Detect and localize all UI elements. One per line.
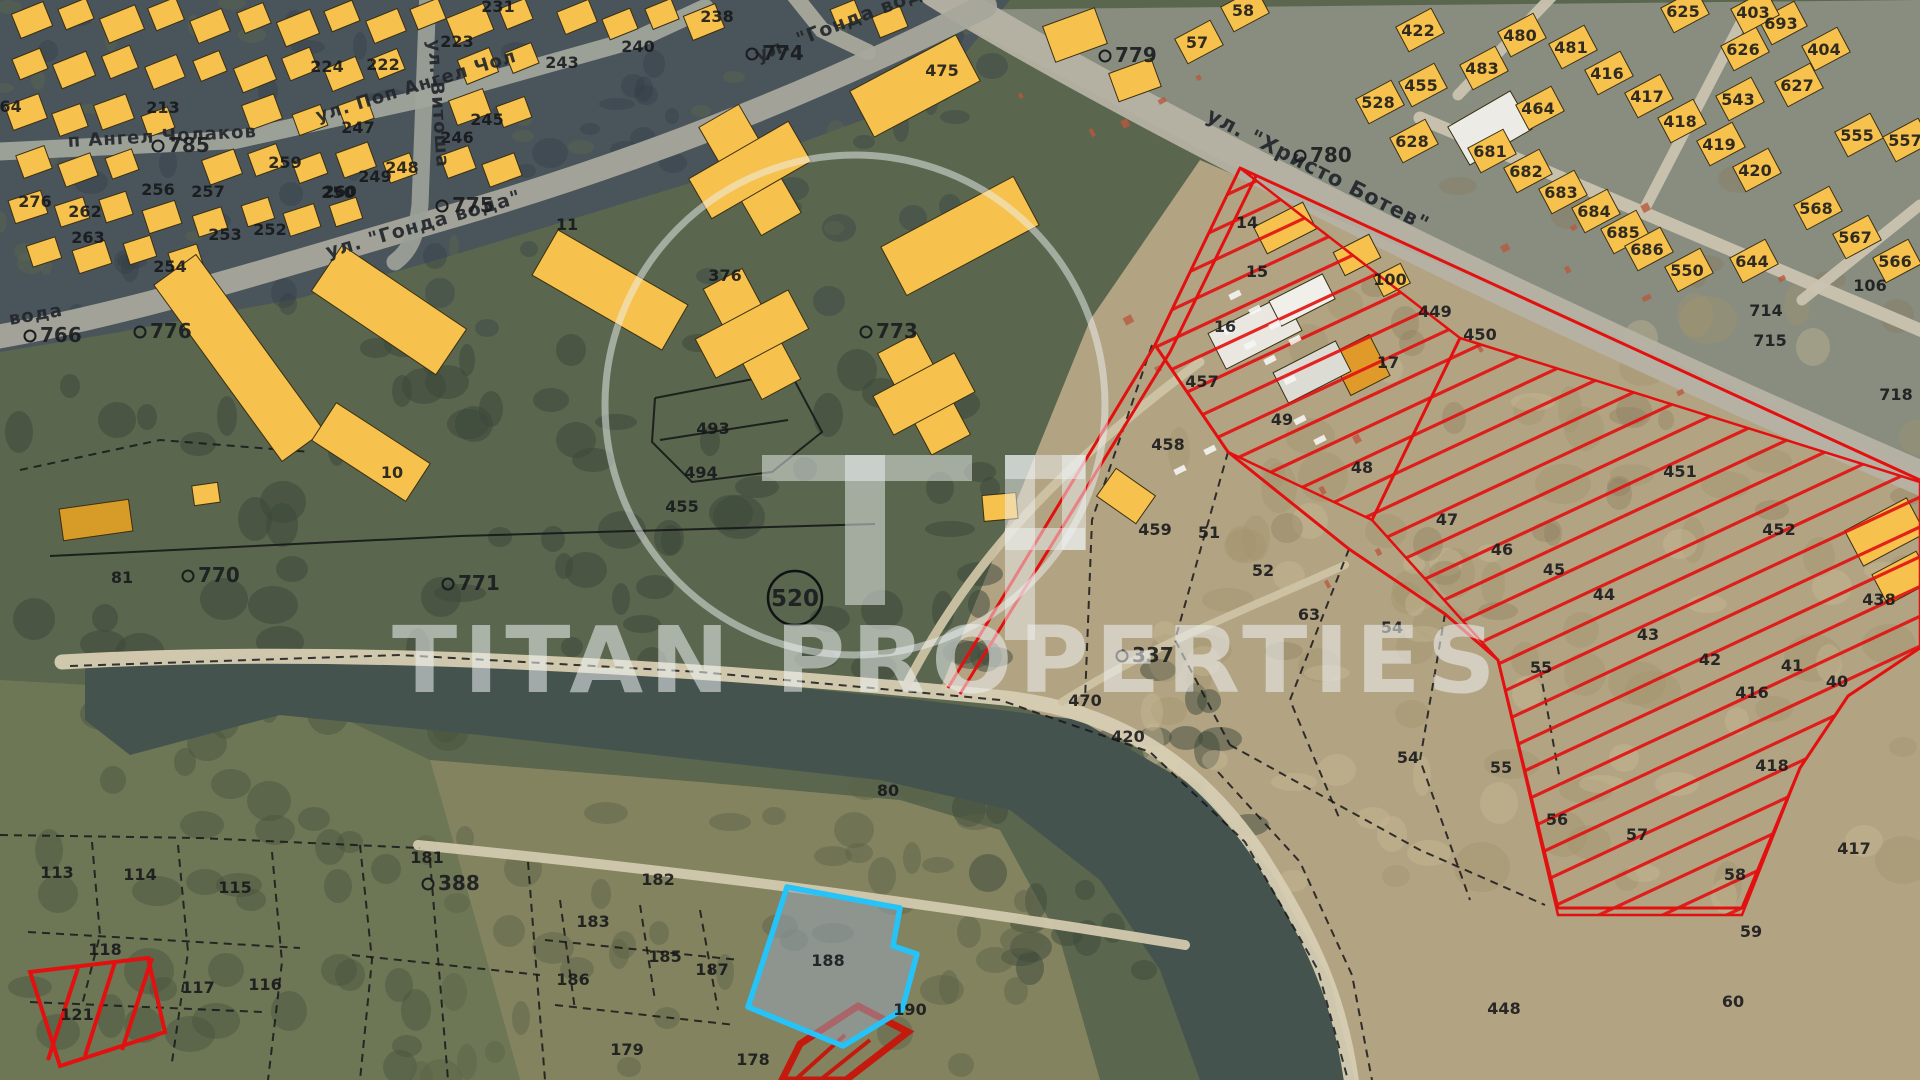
parcel-label: 438 [1862,590,1895,609]
parcel-label: 117 [181,978,214,997]
parcel-label: 52 [1252,561,1274,580]
tree-patch [762,807,786,825]
tree-patch [837,349,877,391]
tree-patch [100,766,126,794]
aerial-map-svg: 2132222232242312382402432452462472482492… [0,0,1920,1080]
parcel-label: 264 [0,97,22,116]
tree-patch [279,293,297,315]
parcel-label: 449 [1418,302,1451,321]
parcel-label: 568 [1799,199,1832,218]
tree-patch [957,814,993,830]
parcel-label: 376 [708,266,741,285]
parcel-label: 48 [1351,458,1373,477]
survey-point-number: 388 [438,871,480,895]
tree-patch [276,556,308,582]
parcel-label: 417 [1630,87,1663,106]
tree-patch [266,503,298,547]
parcel-label: 483 [1465,59,1498,78]
parcel-label: 276 [18,192,51,211]
parcel-label: 455 [665,497,698,516]
tree-patch [137,404,157,430]
parcel-label: 243 [545,53,578,72]
tree-patch [556,334,586,366]
parcel-label: 80 [877,781,899,800]
parcel-label: 420 [1111,727,1144,746]
survey-point-number: 770 [198,563,240,587]
tree-patch [649,921,669,945]
tree-patch [813,286,845,316]
tree-patch [1579,775,1625,793]
parcel-label: 715 [1753,331,1786,350]
parcel-label: 178 [736,1050,769,1069]
tree-patch [324,869,352,903]
tree-patch [595,414,637,430]
tree-patch [1169,726,1203,750]
tree-patch [255,815,295,845]
survey-point-number: 776 [150,319,192,343]
tree-patch [1014,890,1034,912]
parcel-label: 121 [60,1005,93,1024]
tree-patch [584,802,628,824]
parcel-label: 45 [1543,560,1565,579]
parcel-label: 57 [1626,825,1648,844]
tree-patch [853,135,875,149]
parcel-label: 543 [1721,90,1754,109]
tree-patch [279,182,303,206]
parcel-label: 481 [1554,38,1587,57]
parcel-label: 420 [1738,161,1771,180]
tree-patch [475,319,499,337]
parcel-label: 47 [1436,510,1458,529]
tree-patch [425,278,455,308]
parcel-label: 566 [1878,252,1911,271]
tree-patch [217,396,237,436]
tree-patch [925,521,975,537]
parcel-label: 182 [641,870,674,889]
tree-patch [5,411,33,453]
parcel-label: 464 [1521,99,1554,118]
parcel-label: 457 [1185,372,1218,391]
survey-point-number: 785 [168,133,210,157]
parcel-label: 252 [253,220,286,239]
tree-patch [533,388,569,412]
survey-point-number: 766 [40,323,82,347]
parcel-label: 416 [1735,683,1768,702]
parcel-label: 686 [1630,240,1663,259]
parcel-label: 253 [208,225,241,244]
tree-patch [834,812,874,848]
parcel-label: 557 [1888,131,1920,150]
tree-patch [827,120,845,142]
tree-patch [636,575,674,599]
parcel-label: 555 [1840,126,1873,145]
tree-patch [441,973,467,1011]
tree-patch [568,140,594,154]
tree-patch [457,1044,477,1080]
tree-patch [813,393,843,437]
parcel-label: 60 [1722,992,1744,1011]
parcel-label: 100 [1373,270,1406,289]
tree-patch [13,598,55,640]
parcel-label: 16 [1214,317,1236,336]
tree-patch [1796,328,1830,366]
parcel-label: 259 [268,153,301,172]
parcel-label: 550 [1670,261,1703,280]
parcel-label: 718 [1879,385,1912,404]
tree-patch [940,110,970,124]
tree-patch [1658,410,1674,430]
tree-patch [298,807,330,831]
parcel-label: 493 [696,419,729,438]
parcel-label: 58 [1232,1,1254,20]
tree-patch [532,138,568,168]
parcel-label: 418 [1663,112,1696,131]
tree-patch [1271,513,1303,543]
watermark-text: TITAN PROPERTIES [392,607,1502,714]
parcel-label: 187 [695,960,728,979]
survey-point-number: 775 [452,193,494,217]
parcel-label: 183 [576,912,609,931]
parcel-label: 254 [153,257,186,276]
tree-patch [488,527,512,547]
parcel-label: 51 [1198,523,1220,542]
parcel-label: 416 [1590,64,1623,83]
parcel-label: 714 [1749,301,1782,320]
parcel-label: 190 [893,1000,926,1019]
parcel-label: 10 [381,463,403,482]
parcel-label: 627 [1780,76,1813,95]
tree-patch [1224,529,1266,563]
tree-patch [1889,737,1917,757]
parcel-label: 55 [1530,658,1552,677]
survey-point-number: 774 [762,41,804,65]
tree-patch [1532,522,1560,542]
parcel-label: 185 [648,947,681,966]
tree-patch [617,1057,641,1077]
tree-patch [1755,500,1789,520]
tree-patch [371,854,401,884]
parcel-label: 681 [1473,142,1506,161]
tree-patch [555,553,573,579]
tree-patch [969,854,1007,892]
parcel-label: 451 [1663,462,1696,481]
parcel-label: 403 [1736,3,1769,22]
tree-patch [8,976,52,998]
tree-patch [248,586,298,624]
tree-patch [1439,177,1477,195]
parcel-label: 418 [1755,756,1788,775]
parcel-label: 683 [1544,183,1577,202]
tree-patch [976,53,1008,79]
tree-patch [92,604,118,632]
tree-patch [493,915,525,947]
watermark-monogram [845,455,885,605]
parcel-label: 452 [1762,520,1795,539]
tree-patch [1382,865,1410,887]
parcel-label: 17 [1377,353,1399,372]
tree-patch [444,893,470,913]
parcel-label: 116 [248,975,281,994]
tree-patch [868,857,896,895]
parcel-label: 106 [1853,276,1886,295]
tree-patch [1480,782,1518,824]
tree-patch [948,1053,974,1077]
tree-patch [247,781,291,821]
parcel-label: 450 [1463,325,1496,344]
tree-patch [402,368,446,404]
parcel-label: 186 [556,970,589,989]
parcel-label: 249 [358,167,391,186]
tree-patch [814,846,852,866]
parcel-label: 455 [1404,76,1437,95]
tree-patch [1075,880,1095,900]
parcel-label: 81 [111,568,133,587]
parcel-label: 257 [191,182,224,201]
tree-patch [512,130,534,142]
parcel-label: 213 [146,98,179,117]
parcel-label: 625 [1666,2,1699,21]
parcel-label: 44 [1593,585,1615,604]
tree-patch [957,916,981,948]
parcel-label: 644 [1735,252,1768,271]
tree-patch [321,954,357,986]
tree-patch [1131,960,1157,980]
tree-patch [1000,926,1044,954]
parcel-label: 54 [1397,748,1419,767]
tree-patch [211,769,251,799]
tree-patch [665,108,679,124]
parcel-label: 59 [1740,922,1762,941]
parcel-label: 224 [310,57,343,76]
tree-patch [353,32,367,60]
watermark-monogram [1005,528,1085,550]
parcel-label: 262 [68,202,101,221]
parcel-label: 458 [1151,435,1184,454]
parcel-label: 41 [1781,656,1803,675]
parcel-label: 14 [1236,213,1258,232]
tree-patch [541,526,565,552]
tree-patch [512,1001,530,1035]
tree-patch [580,123,600,135]
tree-patch [599,98,635,110]
tree-patch [609,939,629,969]
parcel-label: 56 [1546,810,1568,829]
parcel-label: 231 [481,0,514,16]
parcel-label: 684 [1577,202,1610,221]
map-canvas[interactable]: 2132222232242312382402432452462472482492… [0,0,1920,1080]
survey-point-number: 780 [1310,143,1352,167]
parcel-label: 179 [610,1040,643,1059]
parcel-label: 57 [1186,33,1208,52]
parcel-label: 247 [341,118,374,137]
tree-patch [423,243,447,269]
tree-patch [315,829,345,865]
tree-patch [806,246,820,262]
tree-patch [903,842,921,874]
parcel-label: 113 [40,863,73,882]
parcel-label: 11 [556,215,578,234]
parcel-label: 240 [621,37,654,56]
parcel-label: 15 [1246,262,1268,281]
tree-patch [1454,842,1510,892]
building-footprint [192,482,221,505]
parcel-label: 448 [1487,999,1520,1018]
tree-patch [691,105,711,117]
tree-patch [447,409,489,439]
survey-point-number: 773 [876,319,918,343]
parcel-label: 256 [141,180,174,199]
parcel-label: 417 [1837,839,1870,858]
survey-point-number: 771 [458,571,500,595]
parcel-label: 567 [1838,228,1871,247]
parcel-label: 222 [366,55,399,74]
tree-patch [449,235,459,259]
parcel-label: 475 [925,61,958,80]
parcel-label: 628 [1395,132,1428,151]
tree-patch [1679,296,1737,344]
parcel-label: 55 [1490,758,1512,777]
tree-patch [1004,977,1028,1005]
parcel-label: 260 [323,182,356,201]
parcel-label: 480 [1503,26,1536,45]
tree-patch [1318,754,1356,786]
parcel-label: 626 [1726,40,1759,59]
parcel-label: 42 [1699,650,1721,669]
parcel-label: 404 [1807,40,1840,59]
tree-patch [709,495,753,531]
tree-patch [401,989,431,1031]
parcel-label: 494 [684,463,717,482]
tree-patch [939,970,959,1004]
tree-patch [709,813,751,831]
parcel-label: 118 [88,940,121,959]
parcel-label: 58 [1724,865,1746,884]
tree-patch [1609,407,1647,425]
parcel-label: 419 [1702,135,1735,154]
parcel-label: 46 [1491,540,1513,559]
parcel-label: 181 [410,848,443,867]
parcel-label: 528 [1361,93,1394,112]
tree-patch [1481,562,1505,606]
parcel-label: 188 [811,951,844,970]
tree-patch [1655,772,1699,796]
survey-point-number: 779 [1115,43,1157,67]
tree-patch [60,374,80,398]
tree-patch [980,135,1002,153]
parcel-label: 43 [1637,625,1659,644]
parcel-label: 115 [218,878,251,897]
parcel-label: 422 [1401,21,1434,40]
tree-patch [634,85,658,105]
tree-patch [1626,864,1660,882]
parcel-label: 682 [1509,162,1542,181]
parcel-label: 245 [470,110,503,129]
parcel-label: 40 [1826,672,1848,691]
parcel-label: 459 [1138,520,1171,539]
tree-patch [180,432,216,456]
tree-patch [165,1016,215,1052]
parcel-label: 49 [1271,410,1293,429]
parcel-label: 263 [71,228,104,247]
tree-patch [1202,750,1228,770]
tree-patch [485,1041,505,1063]
tree-patch [922,857,954,873]
tree-patch [180,811,224,839]
parcel-label: 238 [700,7,733,26]
tree-patch [98,402,136,438]
tree-patch [591,879,611,909]
tree-patch [824,221,844,235]
tree-patch [520,241,538,257]
tree-patch [723,71,745,83]
parcel-label: 114 [123,865,156,884]
tree-patch [1356,807,1390,829]
